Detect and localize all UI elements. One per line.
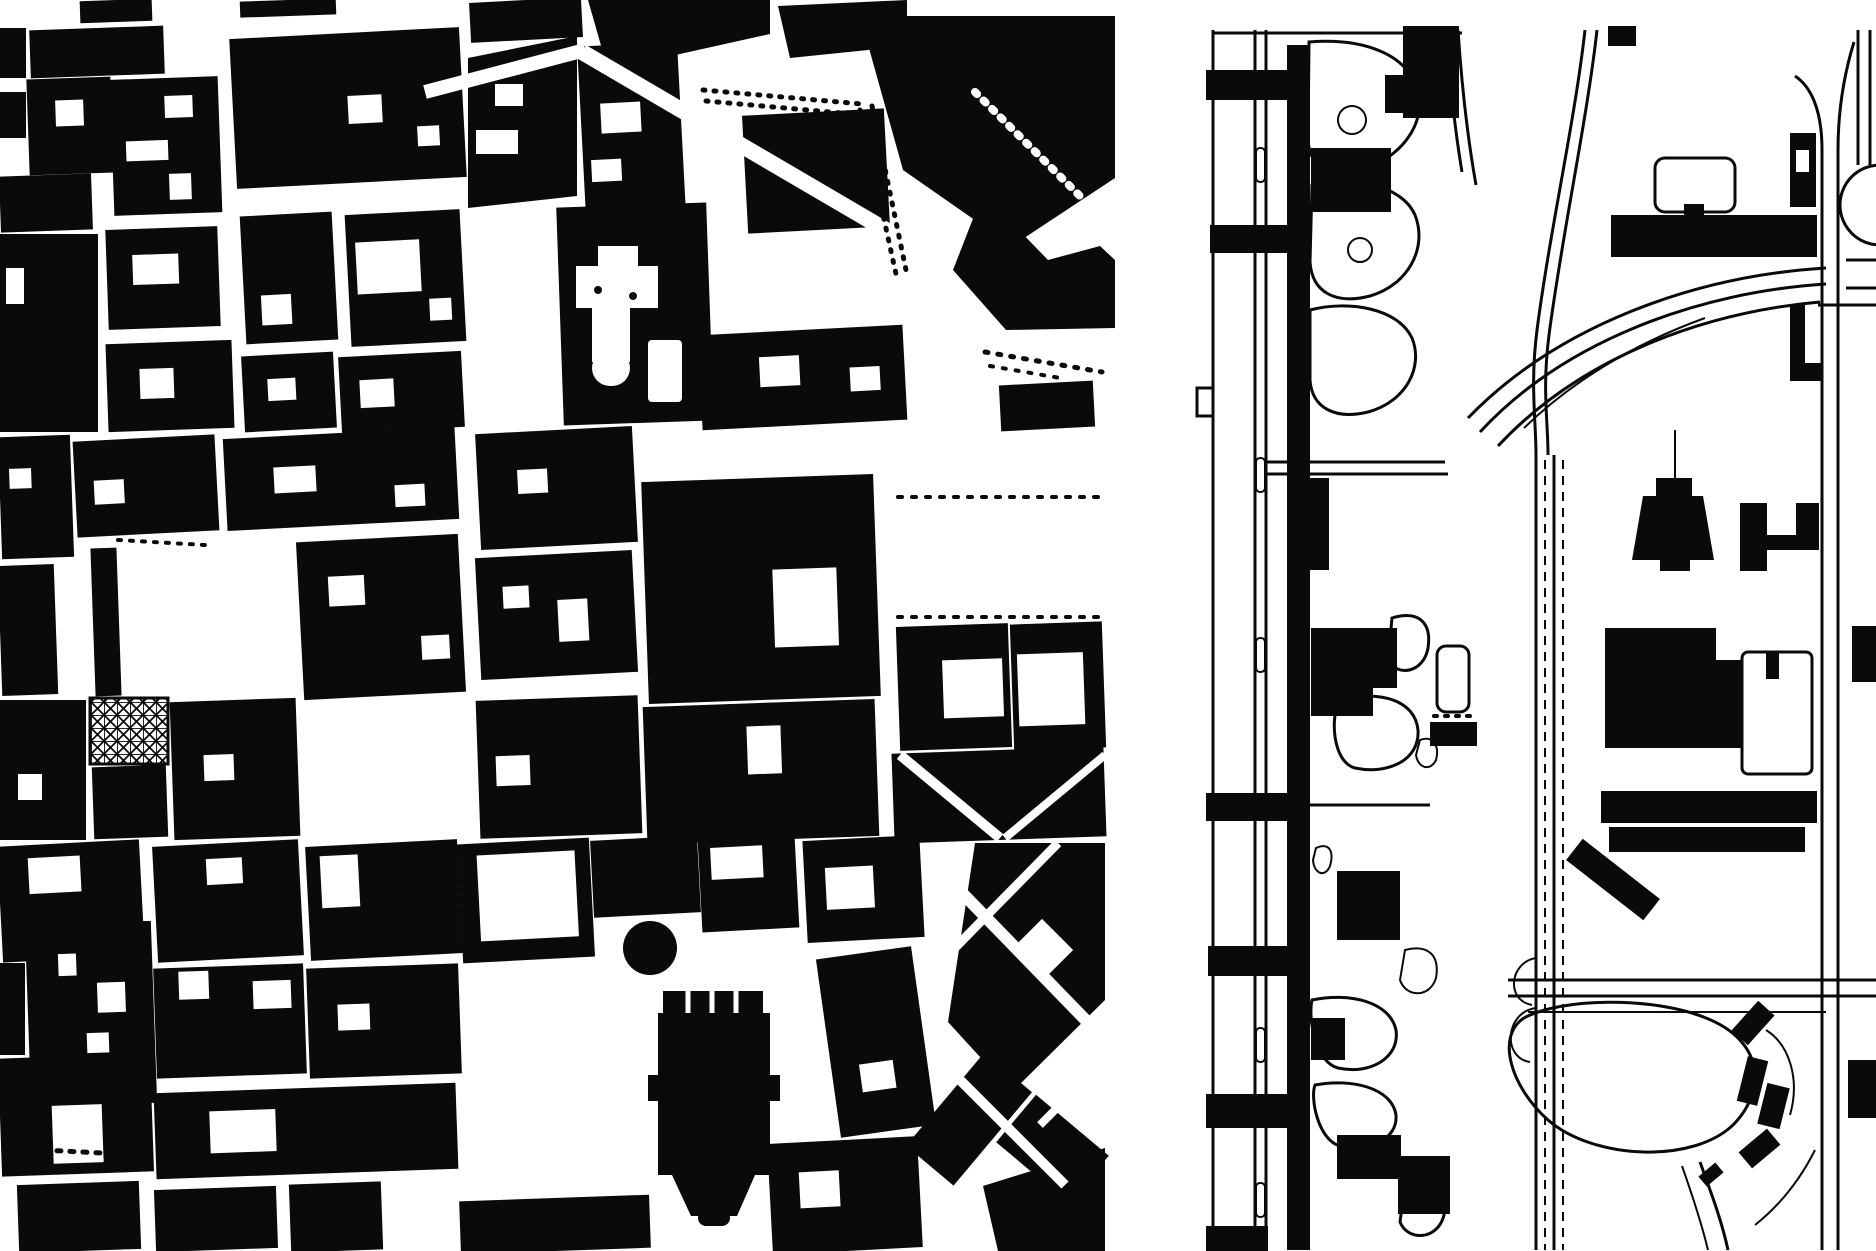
- building: [648, 340, 682, 402]
- courtyard: [759, 355, 801, 387]
- building: [1311, 628, 1397, 688]
- city-block: [229, 27, 467, 189]
- courtyard: [394, 484, 425, 508]
- building: [1611, 215, 1817, 257]
- city-block: [110, 76, 223, 216]
- road-line: [1480, 284, 1826, 432]
- building: [1656, 478, 1692, 496]
- building: [768, 1075, 780, 1101]
- building: [1430, 722, 1477, 746]
- building: [1609, 827, 1805, 852]
- building: [1796, 150, 1809, 172]
- courtyard: [557, 598, 589, 642]
- building: [1287, 45, 1310, 1250]
- building: [592, 350, 630, 386]
- building: [1608, 26, 1636, 46]
- city-block: [17, 1181, 141, 1251]
- city-block: [153, 963, 307, 1078]
- building: [648, 1075, 660, 1101]
- city-block: [154, 1186, 278, 1251]
- city-block: [0, 564, 58, 696]
- building: [1848, 1060, 1876, 1118]
- city-block: [1010, 621, 1106, 750]
- courtyard: [1017, 652, 1085, 726]
- round-outline: [1348, 238, 1372, 262]
- city-block: [305, 839, 463, 961]
- building: [598, 246, 638, 268]
- dotted-detail: [118, 540, 205, 545]
- courtyard: [502, 585, 529, 608]
- courtyard: [94, 479, 125, 505]
- city-block: [457, 838, 595, 964]
- building: [1206, 793, 1292, 821]
- city-block: [0, 92, 26, 138]
- building: [1398, 1156, 1450, 1214]
- courtyard: [850, 366, 881, 392]
- building: [1660, 560, 1690, 571]
- dotted-detail: [706, 101, 864, 115]
- building: [1790, 305, 1822, 381]
- courtyard: [517, 468, 548, 494]
- building: [1208, 946, 1299, 976]
- building: [1206, 1094, 1292, 1128]
- road-line: [1310, 306, 1416, 415]
- courtyard: [496, 755, 531, 786]
- courtyard: [209, 1109, 276, 1153]
- city-block: [338, 351, 465, 433]
- city-block: [999, 381, 1095, 432]
- building: [1337, 1135, 1401, 1179]
- dotted-detail: [990, 366, 1060, 378]
- round-building: [629, 292, 637, 300]
- building-outline: [1256, 1183, 1265, 1217]
- courtyard: [203, 754, 234, 781]
- city-block: [816, 946, 936, 1138]
- building: [1737, 1056, 1769, 1106]
- courtyard: [942, 658, 1004, 718]
- city-block: [0, 963, 25, 1055]
- courtyard: [126, 140, 169, 161]
- courtyard: [320, 854, 361, 908]
- courtyard: [139, 368, 174, 399]
- courtyard: [267, 378, 296, 401]
- city-block: [80, 0, 153, 23]
- city-block: [105, 226, 220, 330]
- city-block: [106, 340, 235, 432]
- courtyard: [825, 865, 875, 909]
- building: [1309, 478, 1329, 570]
- city-block: [92, 765, 168, 840]
- road-line: [1197, 388, 1213, 416]
- city-block: [170, 698, 301, 840]
- courtyard: [772, 567, 839, 647]
- round-building: [594, 286, 602, 294]
- building-outline: [1437, 646, 1469, 712]
- courtyard: [261, 294, 293, 326]
- city-block: [289, 1181, 383, 1251]
- courtyard: [359, 378, 394, 408]
- courtyard: [169, 173, 192, 200]
- city-block: [641, 474, 881, 704]
- city-block: [767, 1136, 923, 1251]
- city-block: [891, 746, 1106, 843]
- city-block: [0, 700, 86, 840]
- city-block: [475, 550, 638, 680]
- courtyard: [477, 850, 579, 941]
- city-block: [345, 209, 467, 347]
- courtyard: [55, 100, 84, 127]
- city-block: [0, 435, 74, 559]
- courtyard: [6, 268, 24, 304]
- city-block: [459, 1195, 651, 1251]
- road-line: [1511, 1008, 1536, 1062]
- building: [1739, 1129, 1781, 1169]
- courtyard: [859, 1060, 897, 1092]
- road-line: [1546, 30, 1597, 455]
- city-block: [73, 434, 220, 537]
- city-block: [223, 427, 459, 531]
- building: [1757, 1083, 1789, 1129]
- building: [1337, 871, 1400, 940]
- building: [1311, 1018, 1345, 1060]
- courtyard: [799, 1170, 841, 1208]
- city-block: [306, 963, 462, 1078]
- building-outline: [1655, 158, 1735, 212]
- courtyard: [206, 857, 243, 885]
- courtyard: [355, 239, 422, 294]
- courtyard: [178, 971, 209, 1000]
- building-outline: [1256, 638, 1265, 672]
- city-block: [698, 325, 908, 431]
- road-line: [1509, 1002, 1755, 1152]
- figure-ground-comparison: [0, 0, 1876, 1251]
- building: [1740, 503, 1767, 571]
- courtyard: [253, 980, 292, 1009]
- city-block: [802, 835, 924, 943]
- courtyard: [710, 845, 764, 880]
- city-block: [475, 426, 638, 550]
- building: [698, 1210, 730, 1226]
- city-block: [26, 77, 113, 176]
- city-block: [0, 1053, 154, 1176]
- courtyard: [591, 159, 622, 183]
- courtyard: [273, 465, 316, 493]
- city-block: [0, 173, 93, 232]
- building: [1210, 225, 1292, 253]
- road-line: [1400, 948, 1437, 993]
- courtyard: [421, 634, 450, 659]
- courtyard: [337, 1003, 370, 1030]
- courtyard: [600, 102, 642, 134]
- building: [672, 1175, 755, 1216]
- courtyard: [746, 725, 782, 774]
- building: [658, 1013, 770, 1175]
- round-outline: [1840, 165, 1876, 245]
- figure-ground-canvas: [0, 0, 1876, 1251]
- courtyard: [97, 982, 126, 1013]
- courtyard: [28, 855, 82, 894]
- city-block: [29, 26, 165, 79]
- courtyard: [18, 774, 42, 800]
- right-figure-ground-map: [1197, 26, 1876, 1251]
- courtyard: [132, 253, 179, 285]
- courtyard: [347, 94, 382, 124]
- city-block: [296, 534, 466, 700]
- city-block: [0, 28, 26, 78]
- city-block: [698, 836, 800, 933]
- building: [495, 84, 523, 106]
- city-block: [152, 839, 304, 962]
- building: [1206, 1226, 1268, 1251]
- building: [1632, 496, 1714, 560]
- courtyard: [429, 298, 452, 321]
- street: [1040, 1060, 1105, 1125]
- building: [1796, 503, 1819, 536]
- building-outline: [1256, 1028, 1265, 1062]
- city-block: [590, 835, 701, 917]
- building: [1767, 535, 1819, 550]
- building-outline: [1256, 148, 1265, 182]
- city-block: [556, 202, 714, 425]
- city-block: [476, 695, 643, 839]
- crosshatch-garden: [90, 698, 168, 764]
- city-block: [0, 234, 98, 432]
- round-outline: [1338, 106, 1366, 134]
- building: [1766, 652, 1779, 679]
- courtyard: [417, 125, 440, 146]
- courtyard: [9, 468, 32, 489]
- building: [476, 130, 518, 154]
- city-block: [154, 1083, 459, 1179]
- city-block: [469, 0, 583, 43]
- courtyard: [58, 953, 77, 976]
- courtyard: [164, 95, 193, 118]
- city-block: [240, 212, 339, 345]
- left-figure-ground-map: [0, 0, 1115, 1251]
- building: [1403, 26, 1459, 118]
- building: [1601, 791, 1817, 823]
- city-block: [896, 623, 1012, 751]
- round-building: [623, 921, 677, 975]
- courtyard: [328, 575, 366, 607]
- city-block: [241, 352, 337, 433]
- city-block: [643, 699, 880, 844]
- road-line: [1313, 846, 1331, 873]
- building-outline: [1256, 458, 1265, 492]
- building: [1206, 70, 1300, 100]
- building: [1311, 688, 1373, 716]
- building: [1852, 626, 1876, 682]
- courtyard: [87, 1032, 110, 1053]
- building: [1311, 148, 1391, 212]
- building: [1716, 628, 1741, 660]
- city-block: [90, 548, 121, 697]
- city-block: [240, 0, 336, 18]
- road-line: [1755, 1150, 1815, 1225]
